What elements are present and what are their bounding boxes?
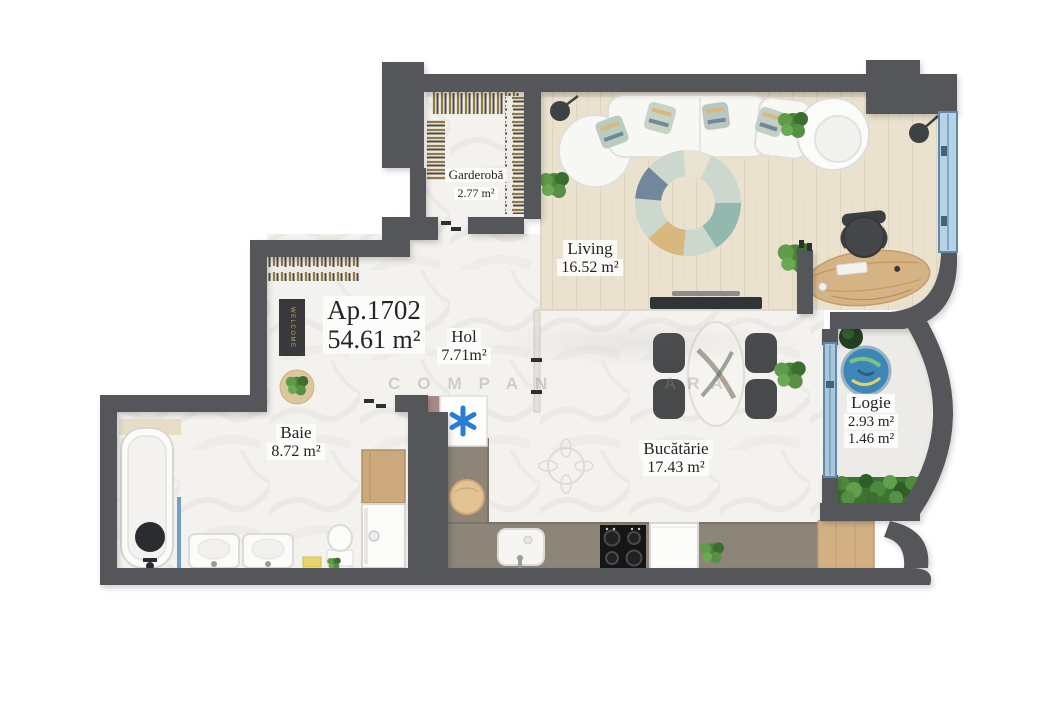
room-area: 17.43 m² (643, 459, 708, 477)
room-area: 7.71m² (437, 347, 490, 365)
apartment-area: 54.61 m² (323, 326, 424, 355)
kitchen-sink (498, 529, 544, 569)
shower-screen (177, 497, 181, 569)
washbasin (189, 534, 239, 568)
room-name: Hol (447, 328, 481, 347)
washing-machine (362, 504, 405, 568)
room-name: Living (563, 240, 616, 259)
towels (303, 557, 321, 567)
room-area: 2.77 m² (454, 187, 499, 200)
refrigerator (650, 523, 698, 569)
welcome-mat-text: WELCOME (289, 307, 295, 349)
watermark-text: COMPAN (388, 374, 564, 394)
room-area: 16.52 m² (557, 259, 622, 277)
watermark-smudge (470, 320, 810, 366)
room-label-bucatarie: Bucătărie 17.43 m² (626, 440, 726, 476)
watermark-text: ARA (664, 374, 734, 394)
round-armchair (797, 98, 869, 170)
floor-plan-image: Ap.1702 54.61 m² Garderobă 2.77 m² Livin… (0, 0, 1039, 720)
room-name: Baie (276, 424, 315, 443)
hanging-egg-chair (842, 347, 890, 395)
wood-deck (818, 521, 874, 569)
room-name: Garderobă (445, 168, 508, 182)
apartment-number: Ap.1702 (323, 296, 425, 326)
room-name: Logie (847, 394, 895, 413)
room-area: 2.93 m² (844, 414, 898, 431)
window-glass (939, 112, 957, 252)
room-label-hol: Hol 7.71m² (426, 328, 502, 364)
stool (450, 480, 484, 514)
room-label-logie: Logie 2.93 m² 1.46 m² (834, 394, 908, 448)
apartment-label: Ap.1702 54.61 m² (318, 296, 430, 354)
cooktop (600, 525, 646, 569)
washbasin (243, 534, 293, 568)
office-chair (841, 210, 886, 257)
room-label-garderoba: Garderobă 2.77 m² (436, 166, 516, 201)
bathroom-cabinet (362, 450, 405, 503)
room-label-baie: Baie 8.72 m² (256, 424, 336, 460)
room-label-living: Living 16.52 m² (546, 240, 634, 276)
welcome-mat: WELCOME (279, 299, 305, 356)
room-area: 8.72 m² (267, 443, 324, 461)
room-name: Bucătărie (639, 440, 712, 459)
room-area-secondary: 1.46 m² (844, 431, 898, 448)
